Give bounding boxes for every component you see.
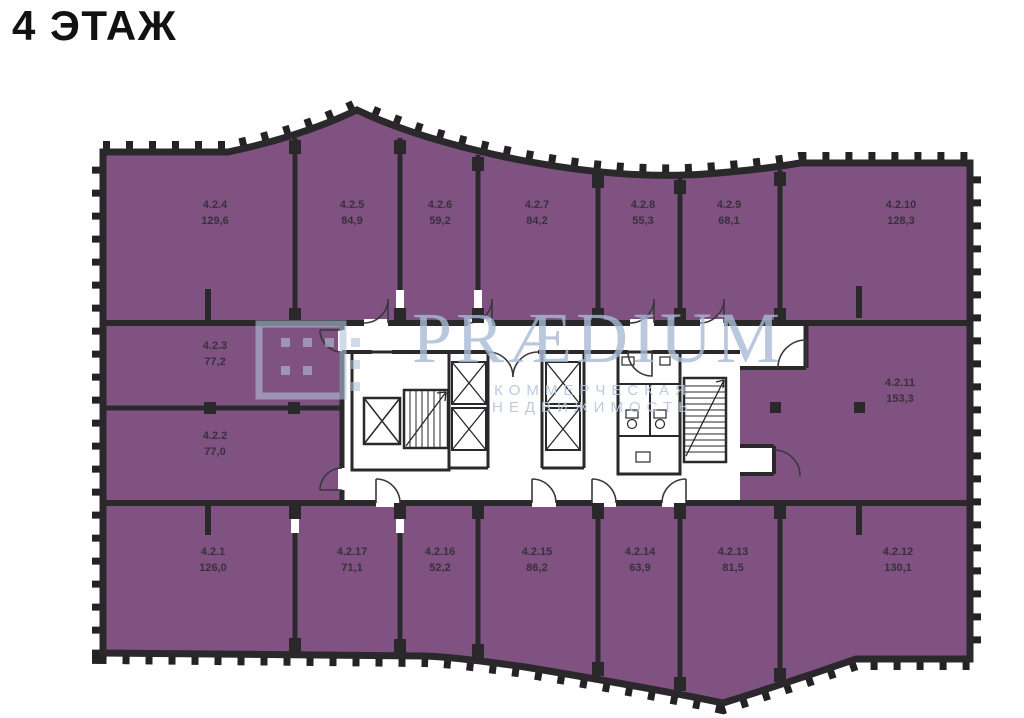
floor-plan-drawing xyxy=(0,0,1024,718)
room-unit-4-2-6[interactable]: 4.2.659,2 xyxy=(428,197,452,229)
room-unit-4-2-11[interactable]: 4.2.11153,3 xyxy=(885,375,915,407)
room-unit-4-2-4[interactable]: 4.2.4129,6 xyxy=(201,197,229,229)
floor-plan-page: 4 ЭТАЖ 4.2.4129,6 4.2.584,9 4.2.659,2 4.… xyxy=(0,0,1024,718)
room-unit-4-2-17[interactable]: 4.2.1771,1 xyxy=(337,544,368,576)
room-unit-4-2-10[interactable]: 4.2.10128,3 xyxy=(886,197,917,229)
room-unit-4-2-14[interactable]: 4.2.1463,9 xyxy=(625,544,656,576)
room-unit-4-2-5[interactable]: 4.2.584,9 xyxy=(340,197,364,229)
room-unit-4-2-8[interactable]: 4.2.855,3 xyxy=(631,197,655,229)
room-unit-4-2-13[interactable]: 4.2.1381,5 xyxy=(718,544,749,576)
room-unit-4-2-9[interactable]: 4.2.968,1 xyxy=(717,197,741,229)
room-unit-4-2-15[interactable]: 4.2.1586,2 xyxy=(522,544,553,576)
room-unit-4-2-3[interactable]: 4.2.377,2 xyxy=(203,338,227,370)
room-unit-4-2-1[interactable]: 4.2.1126,0 xyxy=(199,544,227,576)
room-unit-4-2-16[interactable]: 4.2.1652,2 xyxy=(425,544,456,576)
page-title: 4 ЭТАЖ xyxy=(12,2,177,50)
room-unit-4-2-7[interactable]: 4.2.784,2 xyxy=(525,197,549,229)
room-unit-4-2-12[interactable]: 4.2.12130,1 xyxy=(883,544,914,576)
room-unit-4-2-2[interactable]: 4.2.277,0 xyxy=(203,428,227,460)
